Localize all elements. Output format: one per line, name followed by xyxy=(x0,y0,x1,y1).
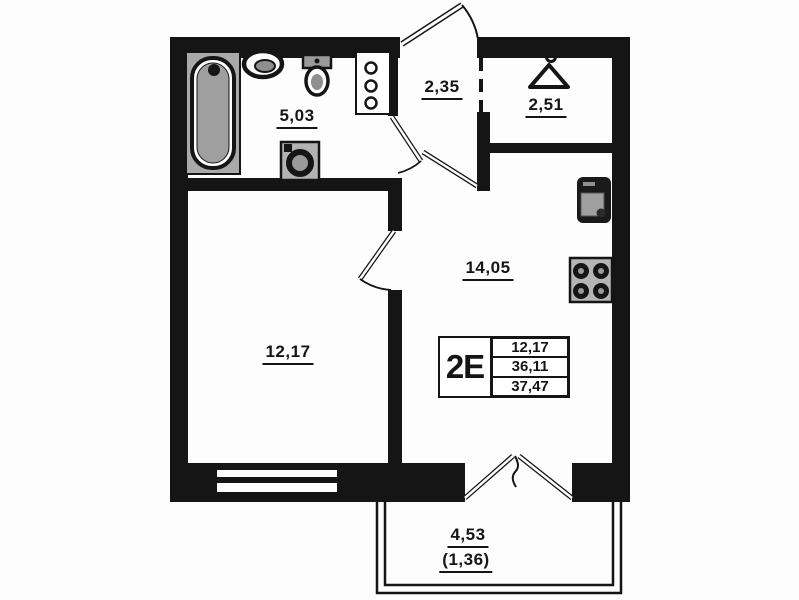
balcony-factored-area-label: (1,36) xyxy=(439,550,492,573)
unit-area-value: 37,47 xyxy=(491,376,569,397)
wash-basin-icon xyxy=(244,51,282,77)
unit-type-code: 2E xyxy=(440,338,492,396)
balcony-area-label: 4,53 xyxy=(447,525,488,548)
hanger-icon xyxy=(530,53,568,88)
hallway-area-label: 2,35 xyxy=(421,77,462,100)
bathroom-area-label: 5,03 xyxy=(276,106,317,129)
balcony-parapet xyxy=(377,502,621,593)
unit-area-value: 36,11 xyxy=(491,356,569,377)
bathroom-door xyxy=(392,117,421,173)
bathtub-icon xyxy=(186,52,240,174)
unit-areas: 12,17 36,11 37,47 xyxy=(492,338,568,396)
balcony-door xyxy=(465,456,572,498)
kitchen-door xyxy=(423,152,477,186)
entrance-door xyxy=(402,5,478,44)
floor-plan: 5,03 2,35 2,51 14,05 12,17 4,53 (1,36) 2… xyxy=(0,0,799,600)
unit-info-card: 2E 12,17 36,11 37,47 xyxy=(438,336,570,398)
kitchen-sink-icon xyxy=(577,177,611,223)
unit-area-value: 12,17 xyxy=(491,337,569,358)
washing-machine-icon xyxy=(281,142,319,180)
room-door xyxy=(360,231,394,290)
stove-icon xyxy=(570,258,612,302)
toilet-icon xyxy=(303,55,331,95)
kitchen-living-area-label: 14,05 xyxy=(462,258,513,281)
wardrobe-area-label: 2,51 xyxy=(525,95,566,118)
plan-graphics xyxy=(0,0,799,600)
plumbing-riser-icon xyxy=(356,52,390,114)
room-area-label: 12,17 xyxy=(262,342,313,365)
